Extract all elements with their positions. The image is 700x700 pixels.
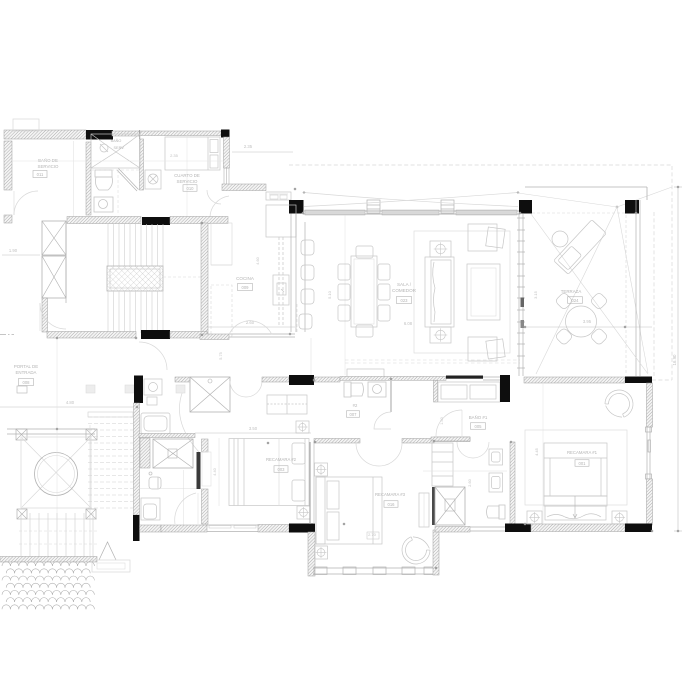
svg-text:001: 001 [579, 461, 587, 466]
svg-text:SERVICIO: SERVICIO [177, 179, 198, 184]
svg-text:COMEDOR: COMEDOR [392, 288, 417, 293]
svg-text:RECAMARA #1: RECAMARA #1 [567, 450, 598, 455]
svg-text:RECAMARA #3: RECAMARA #3 [375, 492, 406, 497]
svg-text:#2: #2 [353, 403, 358, 408]
svg-text:016: 016 [388, 502, 396, 507]
svg-text:4.80: 4.80 [66, 400, 75, 405]
svg-text:3.50: 3.50 [249, 426, 258, 431]
svg-text:5.75: 5.75 [219, 352, 223, 359]
svg-text:4.45: 4.45 [534, 447, 539, 456]
svg-text:003: 003 [278, 467, 286, 472]
svg-text:5.10: 5.10 [327, 290, 332, 299]
svg-text:008: 008 [23, 380, 31, 385]
svg-text:2.35: 2.35 [244, 144, 253, 149]
svg-text:3.15: 3.15 [533, 290, 538, 299]
svg-text:ENTRADA: ENTRADA [16, 370, 37, 375]
svg-text:007: 007 [350, 412, 358, 417]
svg-text:3.95: 3.95 [583, 319, 592, 324]
svg-text:BAÑO #1: BAÑO #1 [469, 415, 488, 420]
svg-text:023: 023 [401, 298, 409, 303]
svg-text:1.50: 1.50 [440, 417, 444, 424]
svg-text:2.60: 2.60 [468, 479, 472, 486]
svg-text:010: 010 [187, 186, 195, 191]
svg-text:16.90: 16.90 [672, 354, 677, 366]
svg-text:PORTAL DE: PORTAL DE [14, 364, 38, 369]
svg-text:2.70: 2.70 [368, 532, 377, 537]
svg-text:024: 024 [572, 298, 580, 303]
svg-text:CUARTO DE: CUARTO DE [174, 173, 200, 178]
svg-text:2.35: 2.35 [170, 153, 179, 158]
svg-text:SERVICIO: SERVICIO [38, 164, 59, 169]
svg-text:SERV.: SERV. [114, 146, 125, 150]
svg-text:BAÑO DE: BAÑO DE [38, 158, 58, 163]
svg-text:RECAMARA #2: RECAMARA #2 [266, 457, 297, 462]
svg-text:4.60: 4.60 [256, 257, 260, 264]
svg-text:COCINA: COCINA [236, 276, 255, 281]
svg-text:009: 009 [242, 285, 250, 290]
svg-text:1.90: 1.90 [9, 248, 18, 253]
svg-text:005: 005 [475, 424, 483, 429]
svg-text:011: 011 [37, 172, 44, 177]
svg-text:TERRAZA: TERRAZA [561, 289, 582, 294]
svg-text:BAÑO: BAÑO [111, 138, 122, 143]
svg-text:4.40: 4.40 [213, 468, 217, 475]
svg-text:6.08: 6.08 [404, 321, 413, 326]
svg-text:SALA /: SALA / [397, 282, 412, 287]
